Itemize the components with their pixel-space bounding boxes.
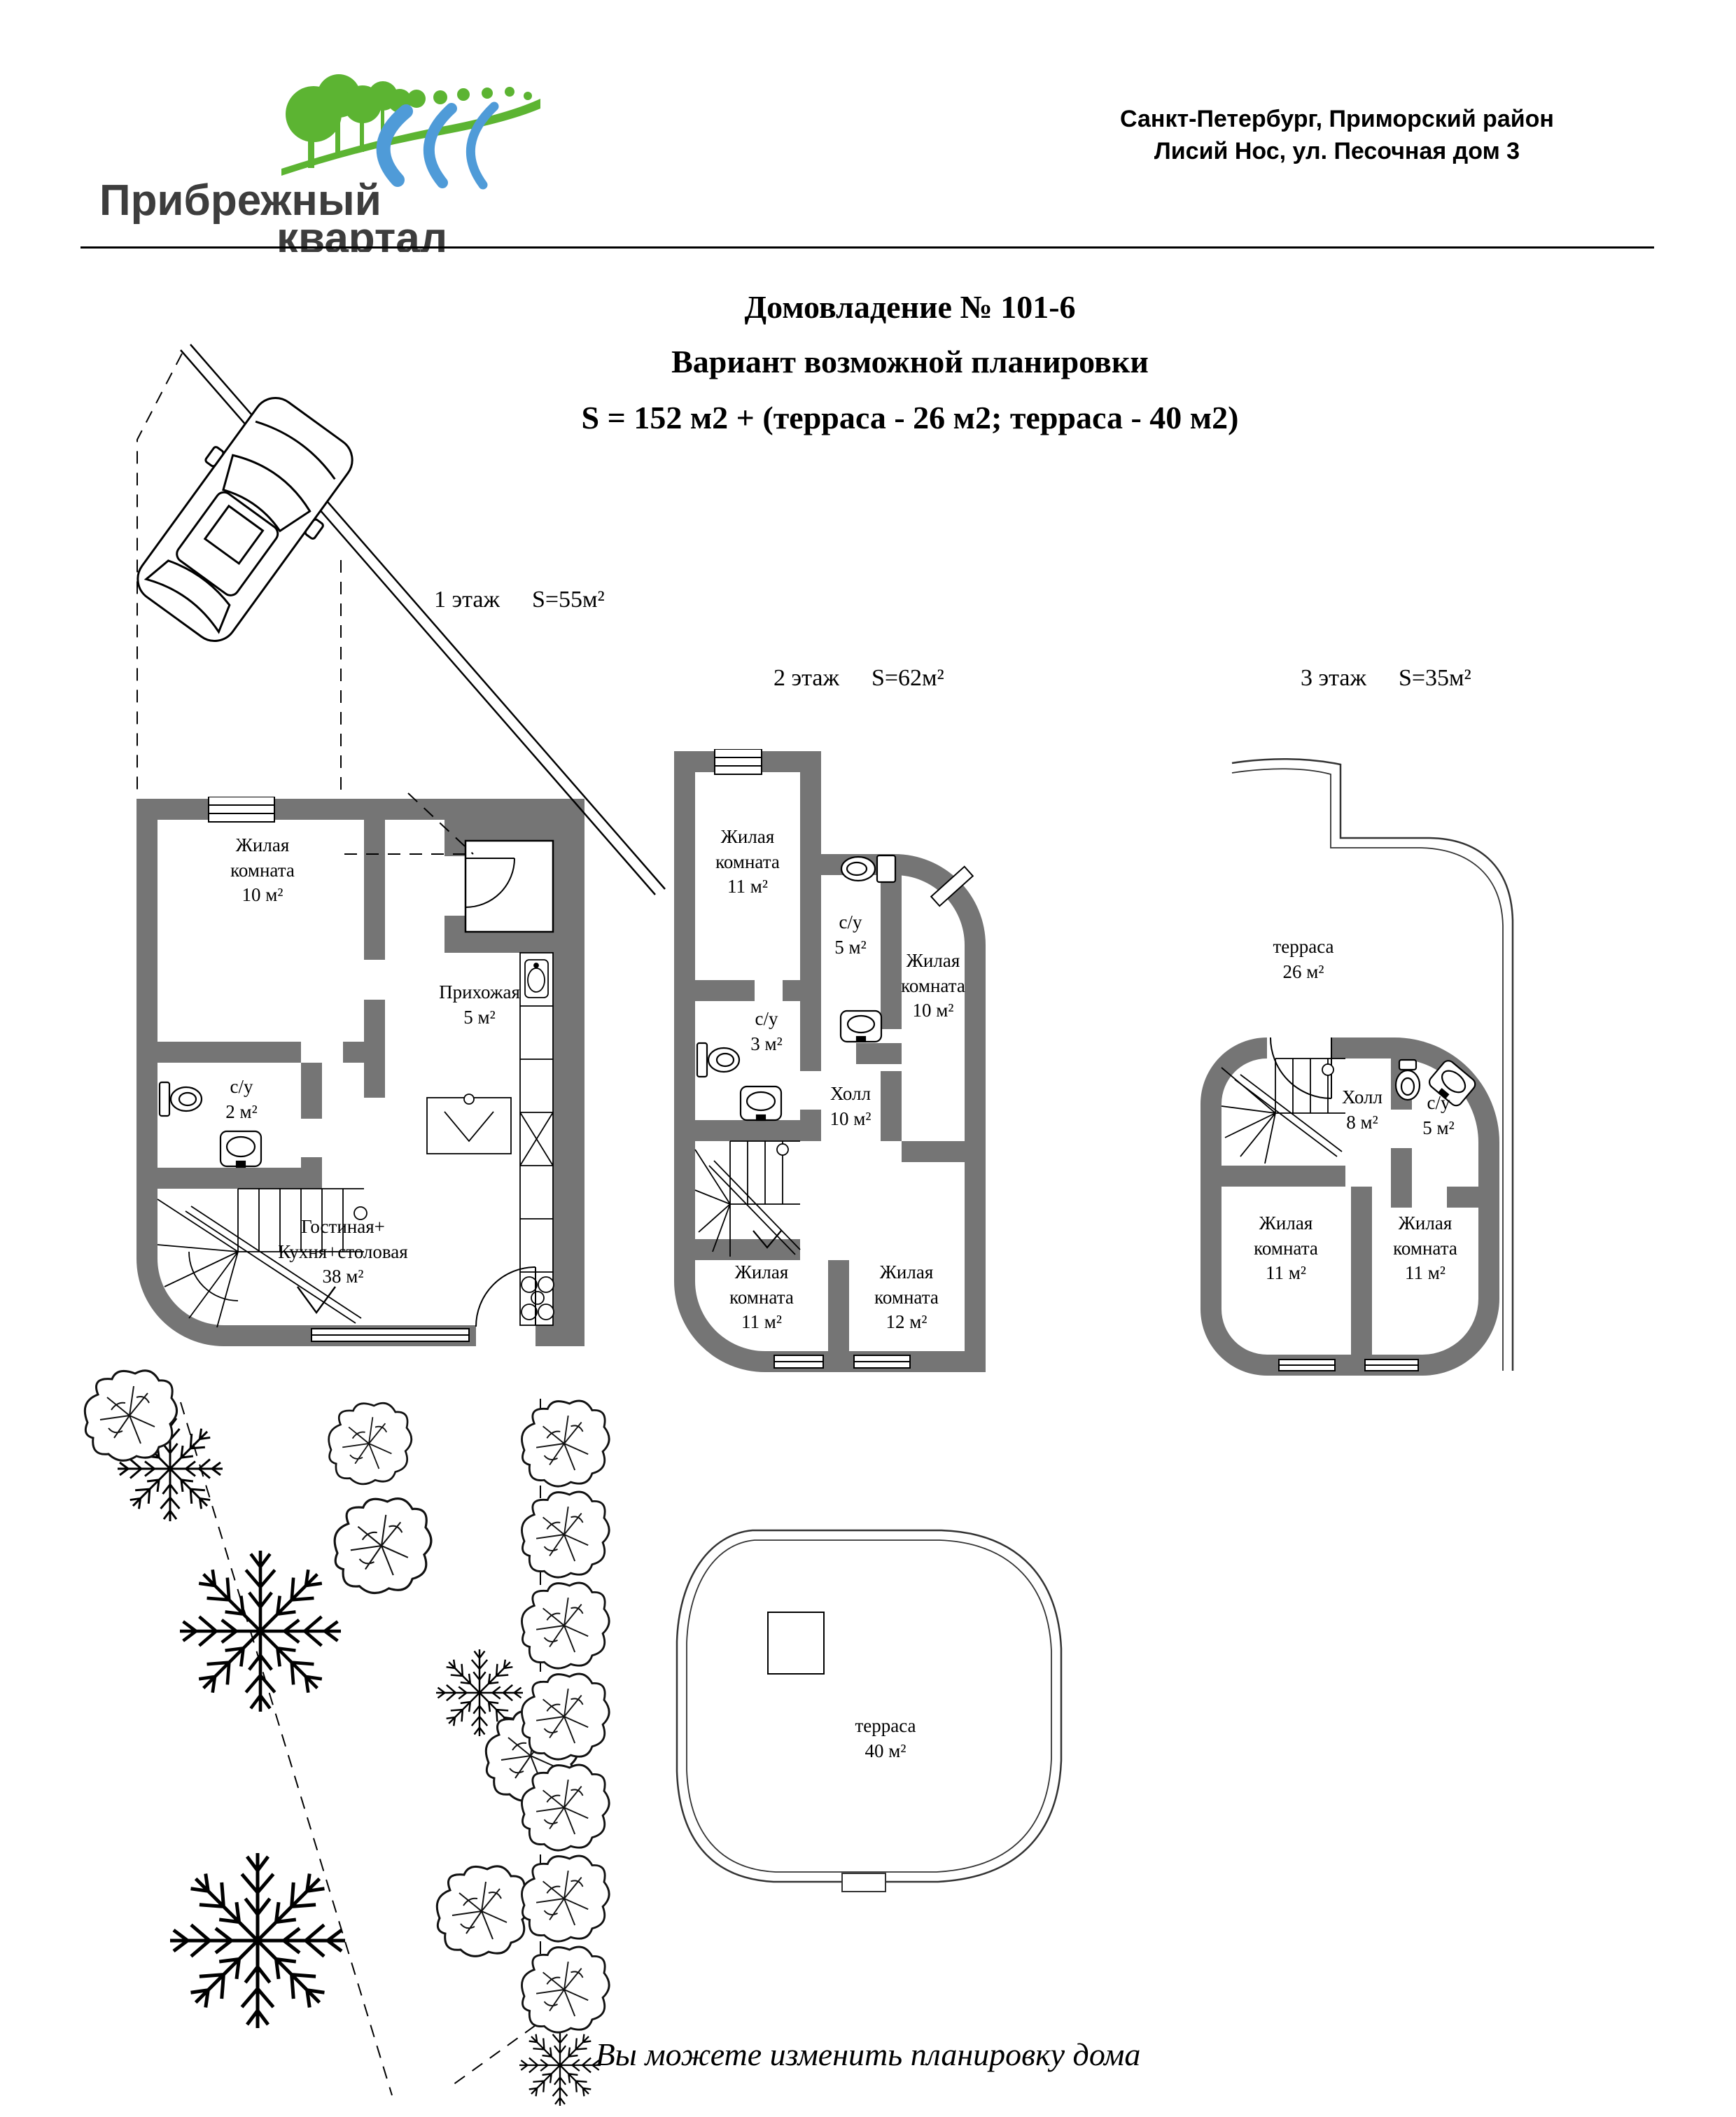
room-name: Гостиная+ Кухня+столовая	[231, 1215, 455, 1264]
room-name: с/у	[812, 910, 889, 935]
room-area: 5 м²	[413, 1005, 546, 1030]
address-block: Санкт-Петербург, Приморский район Лисий …	[1015, 104, 1659, 168]
floor-1-label: 1 этажS=55м²	[434, 587, 605, 613]
room-area: 2 м²	[203, 1100, 280, 1125]
room-label: терраса 26 м²	[1233, 935, 1373, 984]
header-divider	[80, 246, 1654, 249]
floor-2-label: 2 этажS=62м²	[773, 665, 944, 692]
room-name: с/у	[1396, 1091, 1480, 1116]
bush-icon	[85, 1371, 609, 2032]
room-area: 26 м²	[1233, 960, 1373, 985]
room-area: 11 м²	[692, 874, 804, 900]
room-name: Жилая комната	[847, 1260, 966, 1310]
room-name: Жилая комната	[1230, 1211, 1342, 1261]
floor-3-label: 3 этажS=35м²	[1301, 665, 1471, 692]
room-label: Прихожая 5 м²	[413, 980, 546, 1030]
room-area: 38 м²	[231, 1264, 455, 1290]
room-area: 11 м²	[702, 1310, 821, 1335]
room-label: с/у 2 м²	[203, 1075, 280, 1124]
room-name: терраса	[1233, 935, 1373, 960]
room-label: терраса 40 м²	[815, 1714, 955, 1763]
room-label: с/у 5 м²	[1396, 1091, 1480, 1140]
room-name: Прихожая	[413, 980, 546, 1005]
page-subtitle: Вариант возможной планировки	[105, 343, 1715, 380]
room-name: терраса	[815, 1714, 955, 1739]
room-area: 10 м²	[798, 1107, 903, 1132]
footer-note: Вы можете изменить планировку дома	[0, 2036, 1736, 2073]
room-area: 5 м²	[1396, 1116, 1480, 1141]
page-title: Домовладение № 101-6	[105, 288, 1715, 326]
room-label: Гостиная+ Кухня+столовая 38 м²	[231, 1215, 455, 1290]
address-line2: Лисий Нос, ул. Песочная дом 3	[1015, 136, 1659, 168]
room-name: Жилая комната	[881, 949, 986, 998]
address-line1: Санкт-Петербург, Приморский район	[1015, 104, 1659, 136]
room-name: Холл	[798, 1082, 903, 1107]
room-area: 12 м²	[847, 1310, 966, 1335]
room-name: Жилая комната	[1369, 1211, 1481, 1261]
room-label: с/у 3 м²	[728, 1007, 805, 1056]
room-area: 5 м²	[812, 935, 889, 960]
room-area: 40 м²	[815, 1739, 955, 1764]
room-label: Жилая комната 11 м²	[1230, 1211, 1342, 1286]
page: Прибрежный квартал Санкт-Петербург, Прим…	[0, 0, 1736, 2117]
room-area: 11 м²	[1230, 1261, 1342, 1286]
room-label: Жилая комната 11 м²	[1369, 1211, 1481, 1286]
room-name: Жилая комната	[692, 825, 804, 874]
room-name: Жилая комната	[210, 833, 315, 883]
room-name: с/у	[203, 1075, 280, 1100]
room-name: с/у	[728, 1007, 805, 1032]
room-label: Жилая комната 10 м²	[210, 833, 315, 908]
room-area: 3 м²	[728, 1032, 805, 1057]
room-label: Жилая комната 11 м²	[702, 1260, 821, 1335]
room-label: Жилая комната 12 м²	[847, 1260, 966, 1335]
room-label: Холл 10 м²	[798, 1082, 903, 1131]
room-label: Жилая комната 11 м²	[692, 825, 804, 900]
room-label: с/у 5 м²	[812, 910, 889, 960]
room-area: 10 м²	[881, 998, 986, 1023]
room-area: 11 м²	[1369, 1261, 1481, 1286]
room-name: Жилая комната	[702, 1260, 821, 1310]
area-summary: S = 152 м2 + (терраса - 26 м2; терраса -…	[105, 399, 1715, 436]
room-label: Жилая комната 10 м²	[881, 949, 986, 1023]
room-area: 10 м²	[210, 883, 315, 908]
